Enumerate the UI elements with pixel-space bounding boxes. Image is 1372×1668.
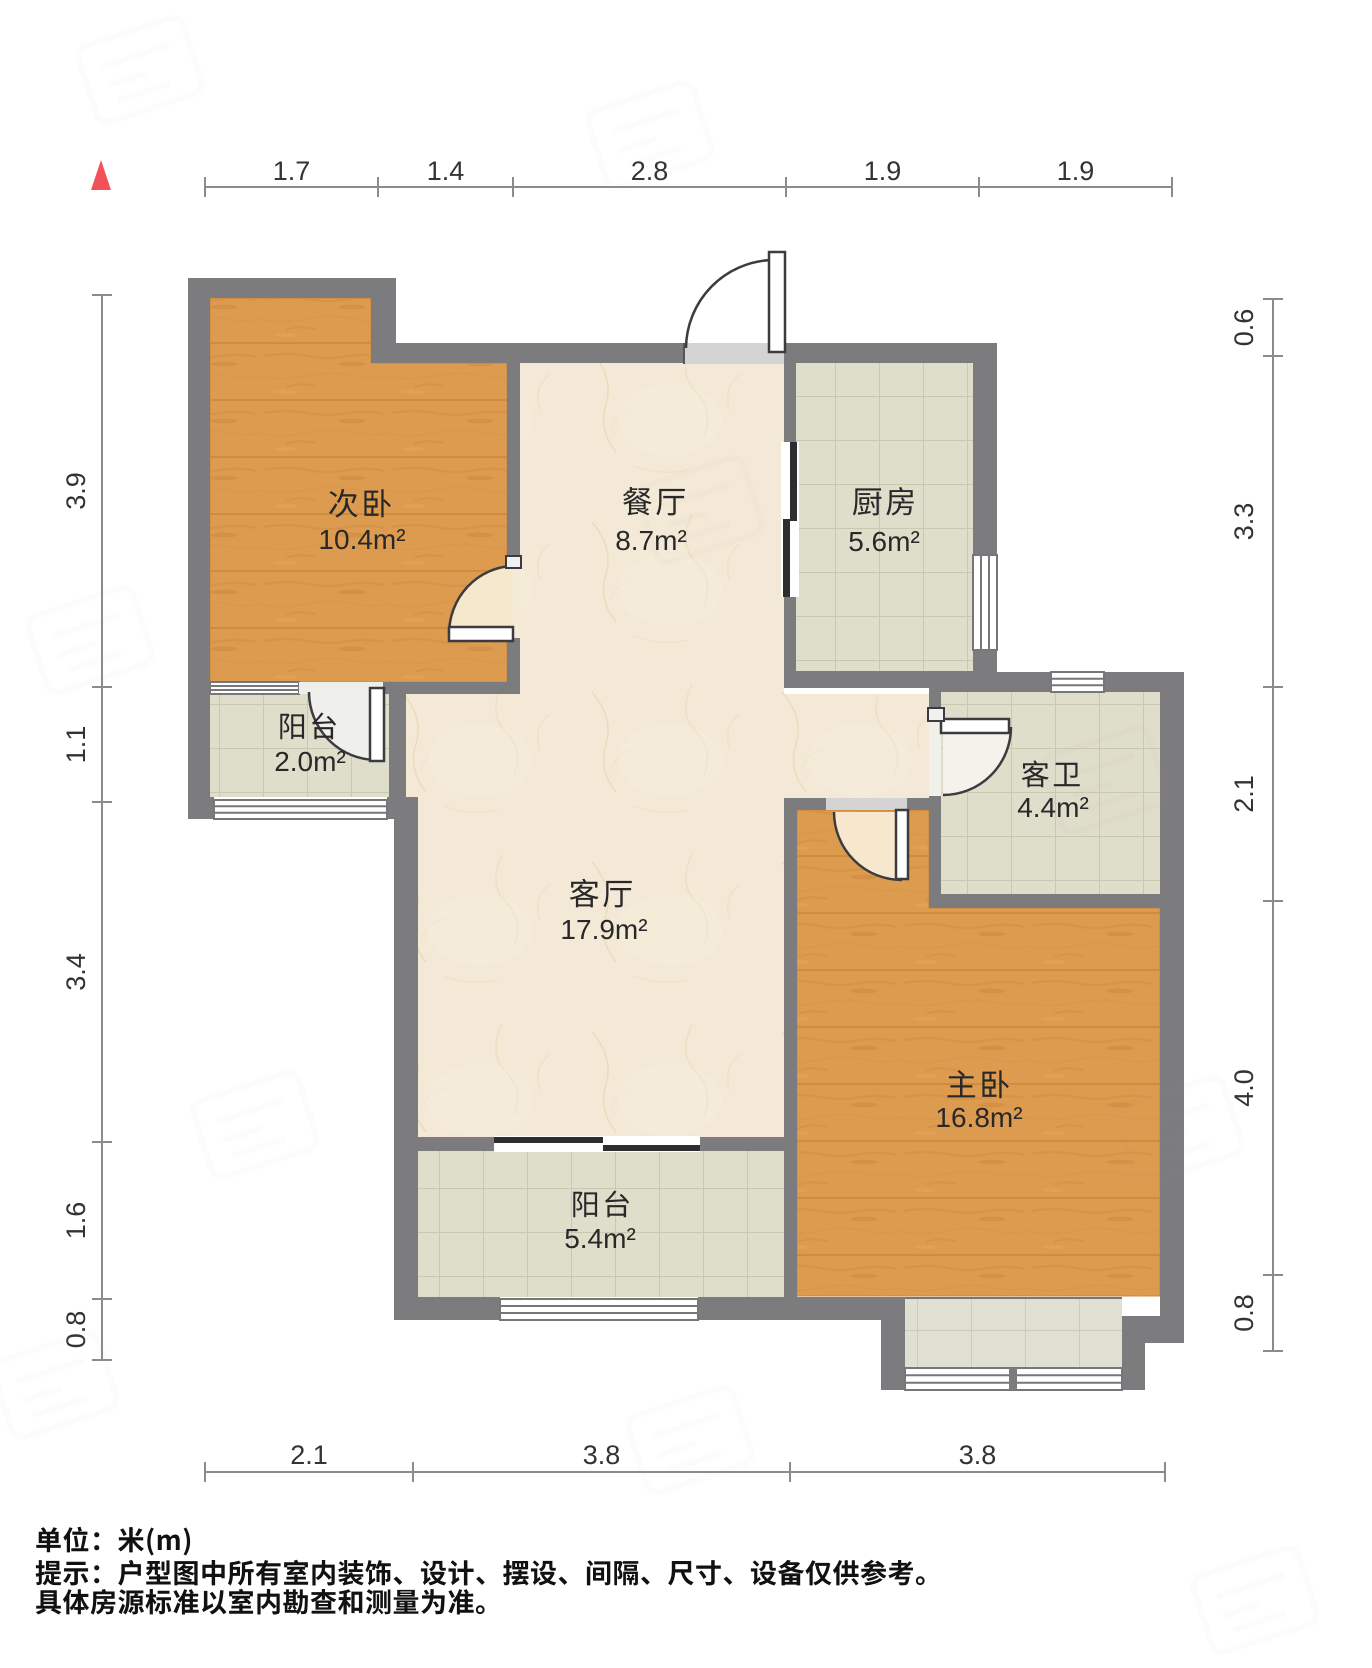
svg-text:3.8: 3.8 xyxy=(959,1440,997,1470)
svg-text:16.8m²: 16.8m² xyxy=(935,1102,1022,1133)
svg-text:1.9: 1.9 xyxy=(864,156,902,186)
svg-text:2.1: 2.1 xyxy=(290,1440,328,1470)
svg-text:5.4m²: 5.4m² xyxy=(564,1223,636,1254)
svg-text:1.6: 1.6 xyxy=(61,1202,91,1240)
svg-text:0.8: 0.8 xyxy=(1229,1294,1259,1332)
svg-text:3.3: 3.3 xyxy=(1229,503,1259,541)
svg-text:10.4m²: 10.4m² xyxy=(318,524,405,555)
svg-text:3.8: 3.8 xyxy=(583,1440,621,1470)
svg-text:5.6m²: 5.6m² xyxy=(848,526,920,557)
svg-text:2.1: 2.1 xyxy=(1229,775,1259,813)
svg-text:3.4: 3.4 xyxy=(61,953,91,991)
svg-text:1.4: 1.4 xyxy=(427,156,465,186)
svg-text:0.6: 0.6 xyxy=(1229,309,1259,347)
svg-text:1.9: 1.9 xyxy=(1057,156,1095,186)
svg-text:17.9m²: 17.9m² xyxy=(560,914,647,945)
svg-text:2.0m²: 2.0m² xyxy=(274,746,346,777)
svg-text:1.7: 1.7 xyxy=(273,156,311,186)
svg-text:4.0: 4.0 xyxy=(1229,1069,1259,1107)
svg-text:3.9: 3.9 xyxy=(61,472,91,510)
svg-text:1.1: 1.1 xyxy=(61,726,91,764)
